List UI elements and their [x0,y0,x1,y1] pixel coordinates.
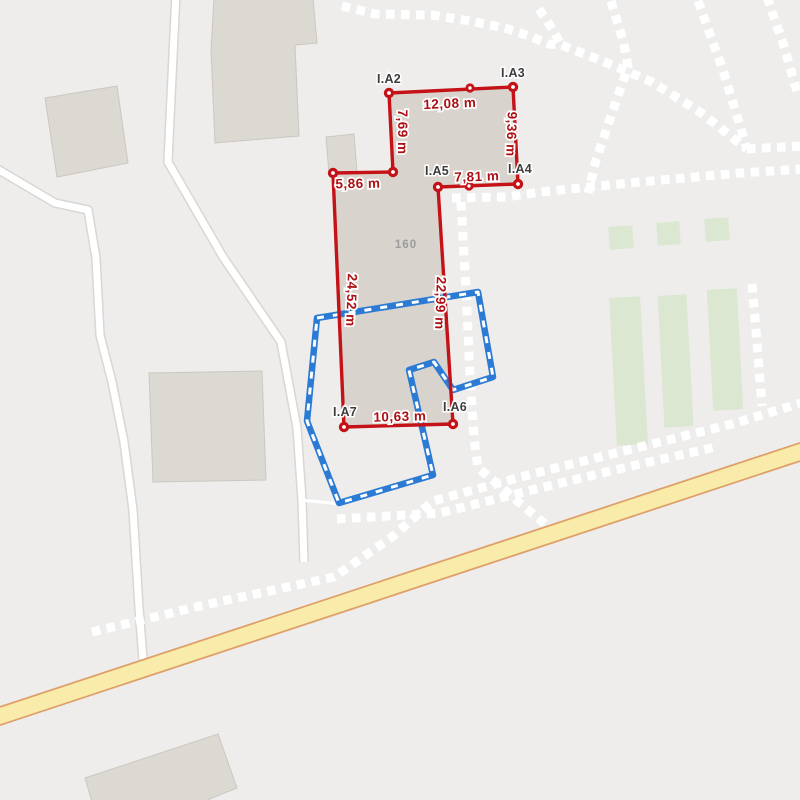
map-canvas[interactable]: 160 I.A2 I.A3 I.A4 I.A5 I.A6 I.A7 12,08 … [0,0,800,800]
measurement-label-bottom: 10,63 m [373,408,426,424]
vertex-label-ia2: I.A2 [377,72,401,86]
measurement-label-small-left: 5,86 m [335,176,380,192]
green-patch [608,225,634,250]
vertex-label-ia6: I.A6 [443,400,467,414]
building [149,371,266,482]
measurement-label-top: 12,08 m [423,95,477,112]
midpoint-marker[interactable] [465,83,474,92]
vertex-marker-ia7[interactable] [339,422,349,432]
vertex-marker-ia2[interactable] [384,88,394,98]
vertex-marker-unlabeled[interactable] [388,167,398,177]
measurement-label-left-upper: 7,69 m [395,109,410,154]
measurement-label-small-right: 7,81 m [454,168,500,185]
vertex-marker-ia3[interactable] [508,82,518,92]
parcel-number-label: 160 [395,239,417,251]
green-strip [707,288,743,410]
measurement-label-right-long: 22,99 m [432,276,449,330]
measurement-label-left-long: 24,52 m [343,273,360,327]
vertex-label-ia4: I.A4 [508,162,532,176]
vertex-marker-ia6[interactable] [448,419,458,429]
vertex-marker-ia4[interactable] [513,179,523,189]
vertex-label-ia3: I.A3 [501,66,525,80]
vertex-marker-ia5[interactable] [433,182,443,192]
building-small [326,134,357,174]
measurement-label-right-upper: 9,36 m [503,111,520,157]
vertex-label-ia5: I.A5 [425,164,449,178]
building [45,86,128,177]
vertex-label-ia7: I.A7 [333,405,357,419]
green-patch [656,221,681,246]
green-patch [704,217,730,242]
